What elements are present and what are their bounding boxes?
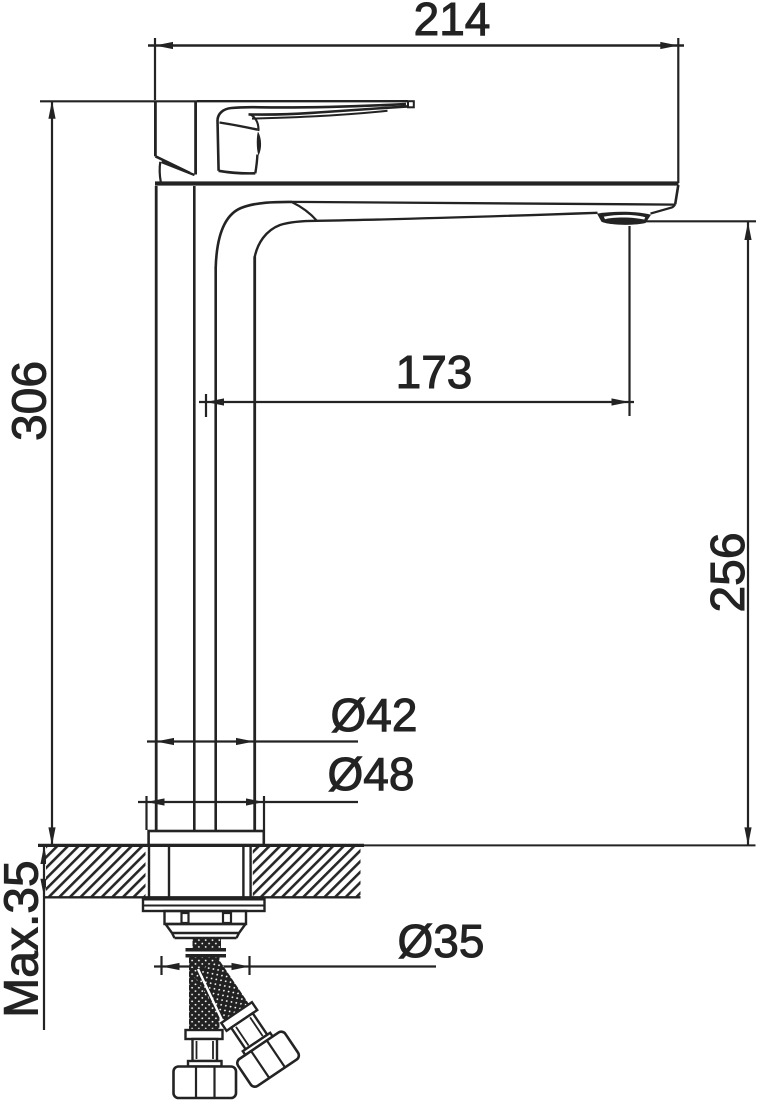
- svg-text:Ø35: Ø35: [398, 915, 485, 967]
- svg-text:214: 214: [414, 0, 491, 45]
- svg-text:Ø48: Ø48: [328, 748, 415, 800]
- svg-text:Ø42: Ø42: [331, 689, 418, 741]
- svg-text:Max.35: Max.35: [0, 860, 49, 1017]
- svg-text:173: 173: [396, 346, 473, 398]
- svg-text:306: 306: [4, 361, 57, 441]
- svg-text:256: 256: [702, 532, 755, 612]
